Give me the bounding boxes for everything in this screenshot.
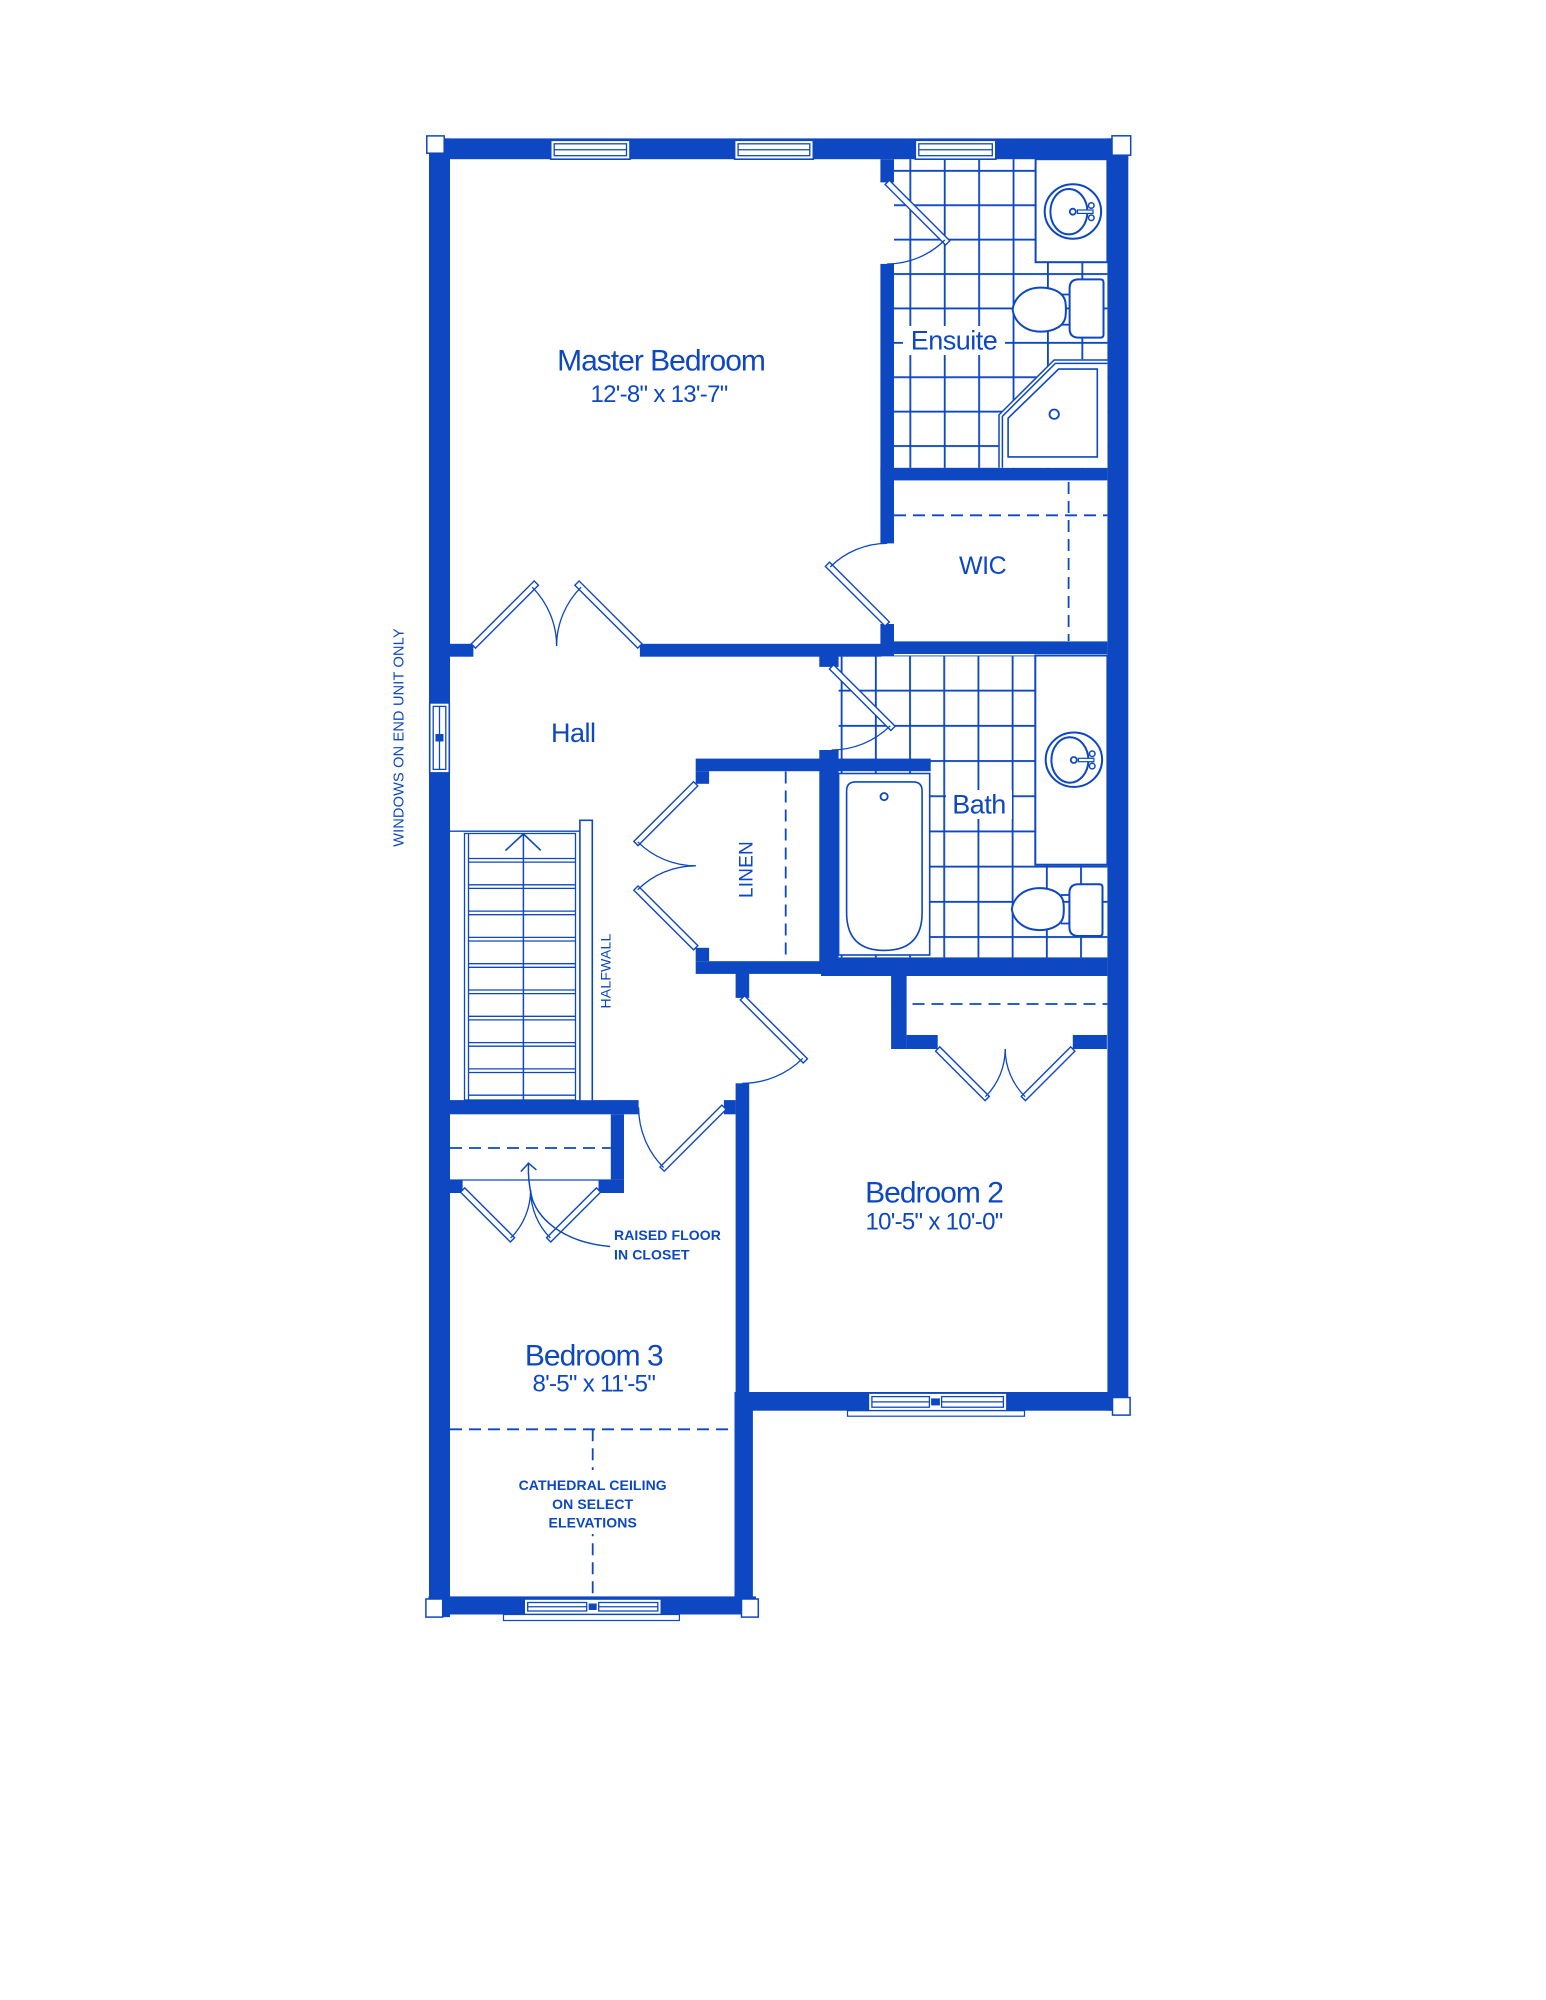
svg-text:HALFWALL: HALFWALL <box>598 933 614 1008</box>
svg-text:Master Bedroom: Master Bedroom <box>557 345 765 378</box>
svg-text:Bedroom 2: Bedroom 2 <box>865 1177 1003 1210</box>
svg-text:ON SELECT: ON SELECT <box>552 1496 633 1512</box>
svg-text:LINEN: LINEN <box>737 841 758 898</box>
svg-text:Bedroom 3: Bedroom 3 <box>525 1340 663 1373</box>
svg-text:Bath: Bath <box>952 790 1006 820</box>
svg-text:WIC: WIC <box>959 552 1007 580</box>
svg-text:Ensuite: Ensuite <box>911 326 998 356</box>
svg-text:RAISED FLOOR: RAISED FLOOR <box>614 1227 721 1243</box>
svg-text:Hall: Hall <box>551 718 596 748</box>
svg-text:IN CLOSET: IN CLOSET <box>614 1247 690 1263</box>
svg-text:12'-8" x 13'-7": 12'-8" x 13'-7" <box>590 381 727 408</box>
svg-text:10'-5" x 10'-0": 10'-5" x 10'-0" <box>865 1209 1002 1236</box>
svg-text:WINDOWS ON END UNIT ONLY: WINDOWS ON END UNIT ONLY <box>392 628 408 847</box>
svg-text:8'-5" x 11'-5": 8'-5" x 11'-5" <box>532 1371 655 1398</box>
svg-text:ELEVATIONS: ELEVATIONS <box>549 1515 637 1531</box>
svg-text:CATHEDRAL CEILING: CATHEDRAL CEILING <box>519 1477 667 1493</box>
